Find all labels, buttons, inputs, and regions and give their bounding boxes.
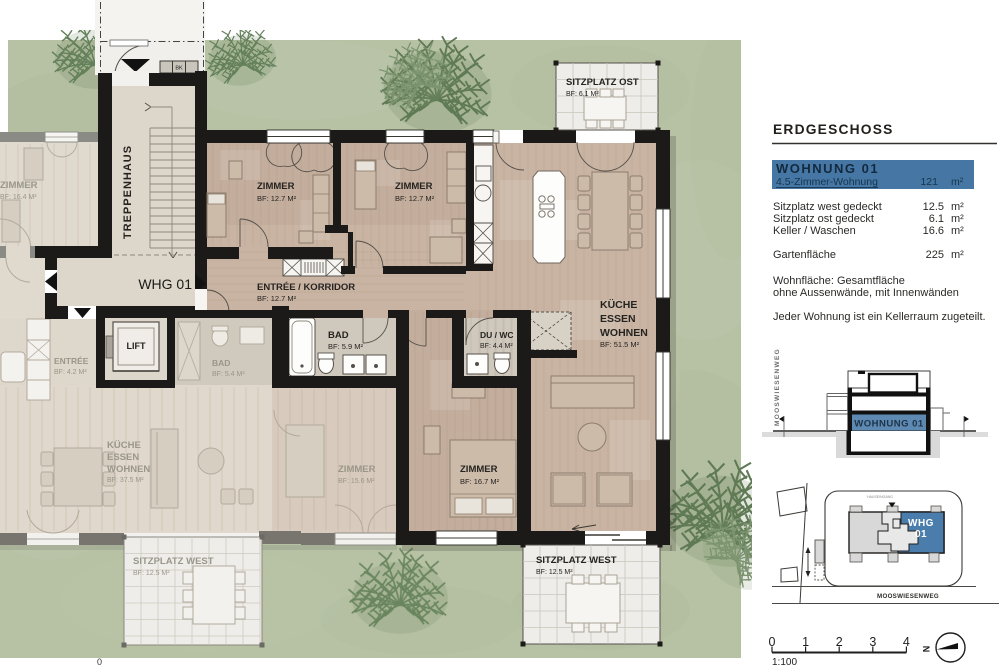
svg-text:Gartenfläche: Gartenfläche <box>773 249 836 261</box>
svg-text:BF: 15.6 M²: BF: 15.6 M² <box>338 478 375 485</box>
svg-text:HAUSEINGANG: HAUSEINGANG <box>867 495 893 499</box>
svg-text:ohne Aussenwände, mit Innenwän: ohne Aussenwände, mit Innenwänden <box>773 287 959 299</box>
svg-text:TREPPENHAUS: TREPPENHAUS <box>122 145 134 239</box>
svg-text:WOHNUNG 01: WOHNUNG 01 <box>776 161 879 176</box>
svg-text:WHG: WHG <box>908 518 934 529</box>
svg-text:ZIMMER: ZIMMER <box>338 464 376 475</box>
svg-text:Jeder Wohnung ist ein Kellerra: Jeder Wohnung ist ein Kellerraum zugetei… <box>773 311 986 323</box>
svg-text:BF: 6.1 M²: BF: 6.1 M² <box>566 91 599 98</box>
svg-text:N: N <box>922 646 932 653</box>
svg-text:6.1: 6.1 <box>929 213 944 225</box>
svg-text:WOHNUNG 01: WOHNUNG 01 <box>854 419 924 430</box>
svg-text:BF: 16.7 M²: BF: 16.7 M² <box>460 477 500 486</box>
svg-text:SITZPLATZ WEST: SITZPLATZ WEST <box>536 555 617 566</box>
svg-text:ESSEN: ESSEN <box>600 313 636 325</box>
svg-text:LIFT: LIFT <box>127 341 146 351</box>
svg-text:m²: m² <box>951 201 964 213</box>
svg-text:m²: m² <box>951 176 964 188</box>
svg-text:BAD: BAD <box>212 358 230 368</box>
svg-text:BF: 5.9 M²: BF: 5.9 M² <box>328 342 364 351</box>
svg-text:Keller / Waschen: Keller / Waschen <box>773 225 856 237</box>
svg-text:ERDGESCHOSS: ERDGESCHOSS <box>773 122 894 137</box>
svg-text:BF: 12.7 M²: BF: 12.7 M² <box>257 294 297 303</box>
svg-text:Wohnfläche: Gesamtfläche: Wohnfläche: Gesamtfläche <box>773 275 905 287</box>
svg-text:BF: 12.7 M²: BF: 12.7 M² <box>395 194 435 203</box>
svg-text:MOOSWIESENWEG: MOOSWIESENWEG <box>774 348 781 426</box>
svg-text:225: 225 <box>926 249 944 261</box>
svg-text:BF: 4.4 M²: BF: 4.4 M² <box>480 343 513 350</box>
svg-text:BF: 4.2 M²: BF: 4.2 M² <box>54 369 87 376</box>
svg-text:BK: BK <box>175 66 183 72</box>
svg-text:BF: 12.5 M²: BF: 12.5 M² <box>536 569 573 576</box>
svg-text:m²: m² <box>951 225 964 237</box>
svg-text:0: 0 <box>97 657 102 667</box>
svg-text:12.5: 12.5 <box>923 201 944 213</box>
svg-text:Sitzplatz ost gedeckt: Sitzplatz ost gedeckt <box>773 213 874 225</box>
svg-text:KÜCHE: KÜCHE <box>600 298 637 311</box>
svg-text:WHG 01: WHG 01 <box>138 276 192 292</box>
svg-text:BF: 51.5 M²: BF: 51.5 M² <box>600 340 640 349</box>
svg-text:ZIMMER: ZIMMER <box>395 181 433 192</box>
svg-text:ZIMMER: ZIMMER <box>0 180 38 191</box>
svg-text:16.6: 16.6 <box>923 225 944 237</box>
svg-text:BF: 12.7 M²: BF: 12.7 M² <box>257 194 297 203</box>
svg-text:BF: 37.5 M²: BF: 37.5 M² <box>107 477 144 484</box>
svg-text:Sitzplatz west gedeckt: Sitzplatz west gedeckt <box>773 201 882 213</box>
svg-text:SITZPLATZ WEST: SITZPLATZ WEST <box>133 556 214 567</box>
svg-text:ZIMMER: ZIMMER <box>257 181 295 192</box>
svg-text:BF: 16.4 M²: BF: 16.4 M² <box>0 194 37 201</box>
svg-text:ENTRÉE: ENTRÉE <box>54 356 89 366</box>
svg-text:m²: m² <box>951 213 964 225</box>
svg-text:01: 01 <box>915 529 927 540</box>
svg-text:1:100: 1:100 <box>772 657 797 667</box>
svg-text:BF: 12.5 M²: BF: 12.5 M² <box>133 570 170 577</box>
svg-text:BF: 5.4 M²: BF: 5.4 M² <box>212 371 245 378</box>
svg-text:BAD: BAD <box>328 330 349 341</box>
svg-text:KÜCHE: KÜCHE <box>107 440 141 451</box>
svg-text:m²: m² <box>951 249 964 261</box>
svg-text:121: 121 <box>920 176 938 188</box>
svg-text:4.5-Zimmer-Wohnung: 4.5-Zimmer-Wohnung <box>776 176 878 188</box>
svg-text:ZIMMER: ZIMMER <box>460 464 498 475</box>
svg-text:WOHNEN: WOHNEN <box>107 464 150 475</box>
svg-text:WOHNEN: WOHNEN <box>600 327 648 339</box>
svg-text:DU / WC: DU / WC <box>480 330 514 340</box>
svg-text:ENTRÉE / KORRIDOR: ENTRÉE / KORRIDOR <box>257 282 355 293</box>
svg-text:MOOSWIESENWEG: MOOSWIESENWEG <box>877 593 939 600</box>
svg-text:ESSEN: ESSEN <box>107 452 139 463</box>
svg-text:SITZPLATZ OST: SITZPLATZ OST <box>566 77 639 88</box>
